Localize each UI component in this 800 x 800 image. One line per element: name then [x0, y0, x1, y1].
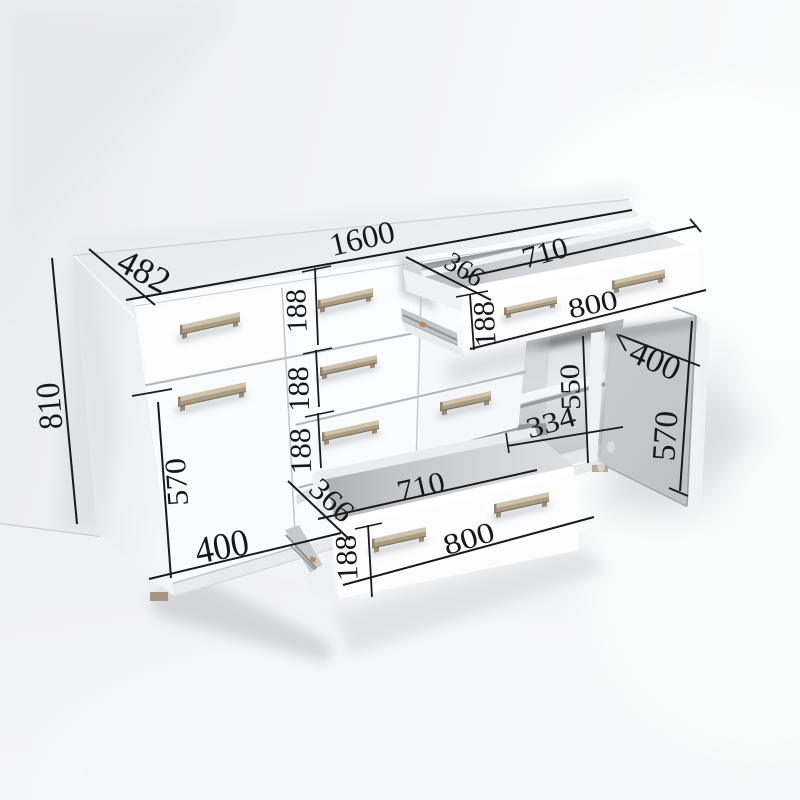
svg-text:570: 570	[646, 410, 685, 462]
svg-text:188: 188	[284, 427, 319, 474]
svg-text:810: 810	[29, 381, 70, 431]
svg-text:188: 188	[329, 534, 364, 582]
svg-text:570: 570	[159, 457, 195, 507]
svg-text:188: 188	[467, 300, 502, 348]
svg-text:188: 188	[282, 366, 317, 412]
svg-text:188: 188	[280, 288, 314, 333]
